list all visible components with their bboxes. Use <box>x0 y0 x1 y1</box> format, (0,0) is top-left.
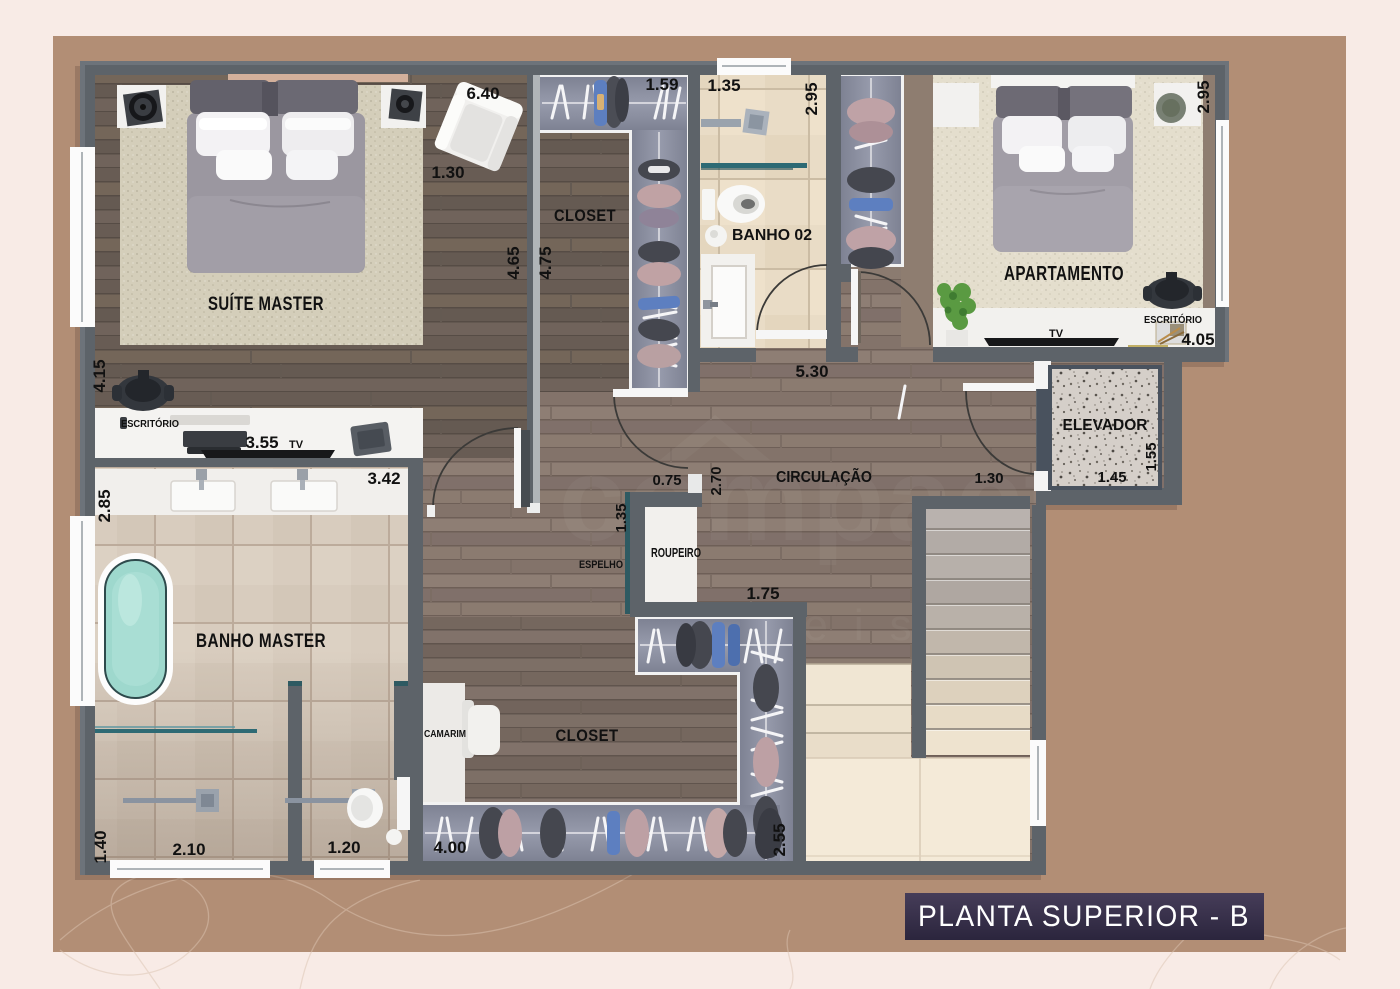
svg-text:ELEVADOR: ELEVADOR <box>1063 417 1148 434</box>
svg-text:3.42: 3.42 <box>368 469 401 488</box>
svg-text:2.95: 2.95 <box>802 83 821 116</box>
svg-text:SUÍTE MASTER: SUÍTE MASTER <box>208 293 324 315</box>
svg-text:2.10: 2.10 <box>173 840 206 859</box>
svg-text:ESPELHO: ESPELHO <box>579 559 623 571</box>
svg-text:1.75: 1.75 <box>747 584 780 603</box>
svg-text:4.15: 4.15 <box>90 360 109 393</box>
svg-text:2.55: 2.55 <box>770 824 789 857</box>
svg-text:ROUPEIRO: ROUPEIRO <box>651 546 701 560</box>
svg-text:3.55: 3.55 <box>246 433 279 452</box>
svg-text:4.75: 4.75 <box>536 247 555 280</box>
svg-text:0.75: 0.75 <box>653 472 682 489</box>
svg-text:ESCRITÓRIO: ESCRITÓRIO <box>121 417 179 430</box>
svg-text:4.00: 4.00 <box>434 838 467 857</box>
svg-text:ESCRITÓRIO: ESCRITÓRIO <box>1144 313 1202 326</box>
svg-text:1.40: 1.40 <box>91 831 110 864</box>
svg-text:4.05: 4.05 <box>1182 330 1215 349</box>
svg-text:TV: TV <box>1049 328 1064 340</box>
svg-text:1.30: 1.30 <box>975 470 1004 487</box>
svg-text:BANHO 02: BANHO 02 <box>732 227 812 244</box>
svg-text:1.20: 1.20 <box>328 838 361 857</box>
svg-text:1.30: 1.30 <box>432 163 465 182</box>
svg-text:5.30: 5.30 <box>796 362 829 381</box>
svg-text:6.40: 6.40 <box>467 84 500 103</box>
svg-text:TV: TV <box>289 439 304 451</box>
svg-text:1.45: 1.45 <box>1098 469 1127 486</box>
svg-text:CLOSET: CLOSET <box>554 206 616 225</box>
svg-text:2.95: 2.95 <box>1194 81 1213 114</box>
svg-text:2.70: 2.70 <box>708 467 725 496</box>
svg-text:1.35: 1.35 <box>708 76 741 95</box>
svg-text:APARTAMENTO: APARTAMENTO <box>1004 263 1124 285</box>
svg-text:2.85: 2.85 <box>95 490 114 523</box>
svg-text:PLANTA SUPERIOR - B: PLANTA SUPERIOR - B <box>918 900 1250 933</box>
svg-text:CIRCULAÇÃO: CIRCULAÇÃO <box>776 466 872 486</box>
svg-text:1.55: 1.55 <box>1143 443 1160 472</box>
svg-text:BANHO MASTER: BANHO MASTER <box>196 631 326 652</box>
svg-text:1.59: 1.59 <box>646 75 679 94</box>
svg-text:CAMARIM: CAMARIM <box>424 729 466 740</box>
svg-text:CLOSET: CLOSET <box>556 726 619 745</box>
svg-text:4.65: 4.65 <box>504 247 523 280</box>
svg-text:1.35: 1.35 <box>613 504 630 533</box>
